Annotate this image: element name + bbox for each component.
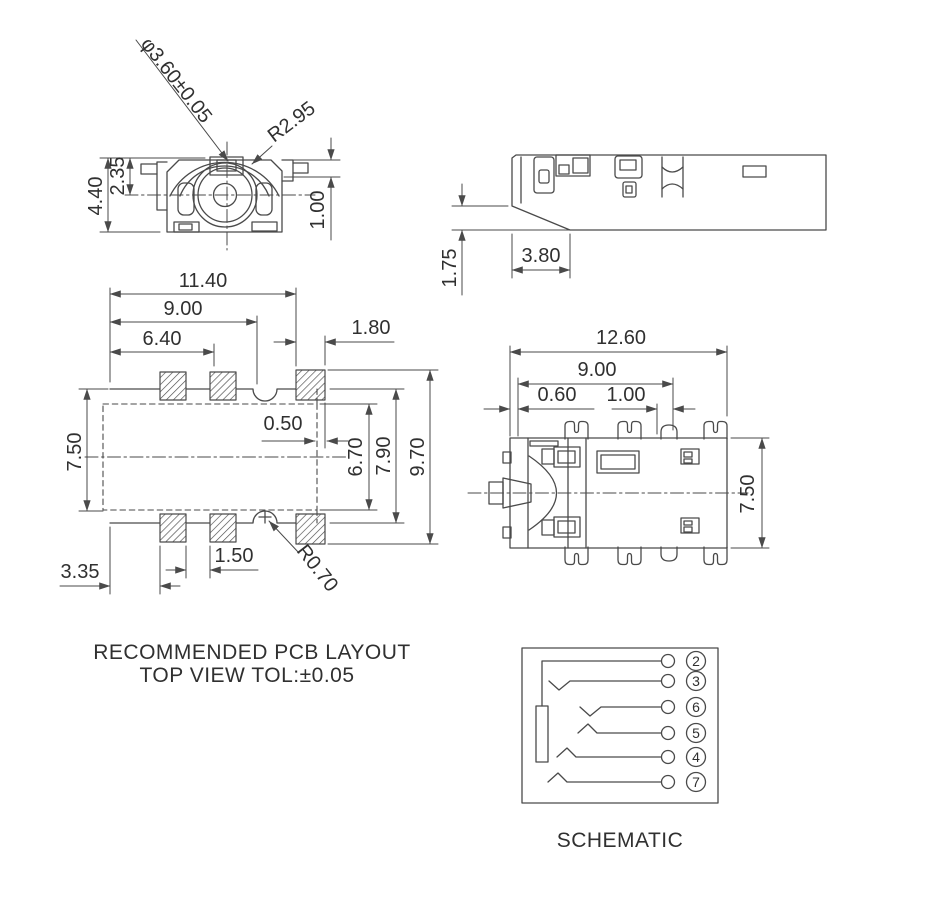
dim-front-step-height: 1.00: [307, 191, 329, 230]
schematic-terminal-pin6: [662, 701, 675, 714]
side-slot-arc-top: [662, 167, 683, 172]
bottom-leg-fork-top-3: [704, 422, 727, 440]
bottom-clip-tl-small: [542, 449, 554, 464]
front-right-tab: [282, 160, 293, 181]
bottom-center-window: [597, 451, 639, 473]
schematic-pin-number: 3: [692, 673, 700, 689]
bottom-clip-tr-inner1: [684, 452, 692, 457]
side-square-inner: [626, 186, 632, 193]
drawing-page: φ3.60±0.05 R2.95 4.40 2.35 1.00 1.75 3.8…: [0, 0, 950, 913]
side-block-inner: [573, 158, 588, 173]
schematic-terminal-pin5: [662, 727, 675, 740]
bottom-leg-fork-bot-3: [704, 547, 727, 565]
pcb-pad-top-3: [296, 370, 325, 400]
dim-front-center-height: 2.35: [107, 157, 129, 196]
front-right-pin: [293, 163, 308, 173]
bottom-clip-tl-inner: [558, 451, 575, 463]
front-left-tab: [157, 162, 167, 210]
bottom-leg-fork-bot-1: [565, 547, 588, 565]
dim-pcb-inner-width: 9.00: [164, 298, 203, 320]
dim-front-overall-height: 4.40: [85, 177, 107, 216]
schematic-pin-number: 4: [692, 749, 700, 765]
pcb-pad-top-1: [160, 372, 186, 400]
dim-bottom-pin-pitch: 1.00: [607, 384, 646, 406]
schematic-wire-pin3: [549, 681, 661, 690]
schematic-pin-number: 7: [692, 774, 700, 790]
dim-pcb-pad-offset: 3.35: [61, 561, 100, 583]
schematic-plug-bar: [536, 706, 548, 762]
side-view-dimensions: [452, 184, 570, 295]
dim-pcb-outline-height: 7.90: [373, 437, 395, 476]
schematic-terminal-pin2: [662, 655, 675, 668]
bottom-leg-fork-top-2: [618, 422, 641, 440]
schematic-wire-pin5: [578, 724, 661, 733]
front-view-dimensions: [100, 40, 340, 240]
side-clip2-inner: [620, 160, 636, 170]
bottom-clip-bl-small: [542, 520, 554, 535]
bottom-view-dimensions: [484, 346, 769, 548]
bottom-clip-br-inner1: [684, 521, 692, 525]
schematic-wire-pin6: [580, 707, 661, 716]
dim-pcb-pad-span: 6.40: [143, 328, 182, 350]
pcb-pad-bottom-2: [210, 514, 236, 542]
schematic-wire-pin7: [548, 773, 661, 782]
pcb-pad-bottom-1: [160, 514, 186, 542]
front-left-foot-inner: [179, 224, 192, 230]
dim-pcb-edge-gap: 0.50: [264, 413, 303, 435]
front-right-foot: [252, 222, 277, 231]
dim-pcb-pad-width: 1.80: [352, 317, 391, 339]
schematic-pin-number: 5: [692, 725, 700, 741]
schematic-terminal-pin3: [662, 675, 675, 688]
dim-front-diameter: φ3.60±0.05: [136, 34, 216, 128]
side-clip2: [615, 156, 642, 178]
dim-pcb-overall-height: 9.70: [407, 438, 429, 477]
dim-bottom-pin-span: 9.00: [578, 359, 617, 381]
bottom-leg-fork-top-1: [565, 422, 588, 440]
dim-side-foot-height: 1.75: [439, 249, 461, 288]
side-clip1: [534, 157, 554, 193]
side-clip1-inner: [539, 170, 549, 183]
pcb-pad-bottom-3: [296, 514, 325, 544]
front-left-pin: [141, 164, 157, 174]
bottom-strip: [530, 441, 558, 446]
side-right-notch: [743, 166, 766, 177]
dim-pcb-overall-width: 11.40: [179, 270, 228, 292]
dim-bottom-body-height: 7.50: [737, 475, 759, 514]
side-square: [623, 182, 636, 197]
schematic-terminal-pin7: [662, 776, 675, 789]
schematic: [522, 648, 718, 803]
schematic-pin-number: 6: [692, 699, 700, 715]
bottom-clip-br-inner2: [684, 527, 692, 532]
pcb-layout-view: [85, 370, 348, 544]
side-slot-arc-bottom: [662, 184, 683, 189]
bottom-leg-bump-top: [661, 425, 677, 439]
technical-drawing: φ3.60±0.05 R2.95 4.40 2.35 1.00 1.75 3.8…: [0, 0, 950, 913]
pcb-caption-line1: RECOMMENDED PCB LAYOUT: [93, 641, 410, 664]
bottom-view: [468, 422, 748, 565]
side-view: [512, 155, 826, 230]
dim-side-chamfer: 3.80: [522, 245, 561, 267]
pcb-caption-line2: TOP VIEW TOL:±0.05: [139, 664, 354, 687]
schematic-pin-number: 2: [692, 653, 700, 669]
side-block-detail: [559, 165, 569, 174]
dim-pcb-pad-gap: 1.50: [215, 545, 254, 567]
schematic-wire-pin4: [557, 748, 661, 757]
schematic-wire-pin2: [542, 661, 661, 706]
dim-bottom-overall-width: 12.60: [596, 327, 646, 349]
schematic-terminal-pin4: [662, 751, 675, 764]
dim-front-radius: R2.95: [264, 97, 320, 147]
bottom-leg-fork-bot-2: [618, 547, 641, 565]
front-left-slot: [178, 183, 194, 215]
schematic-caption: SCHEMATIC: [557, 829, 684, 852]
bottom-leg-bump-bot: [661, 547, 677, 561]
pcb-pad-top-2: [210, 372, 236, 400]
bottom-clip-tr-inner2: [684, 459, 692, 463]
bottom-center-window-inner: [601, 455, 635, 469]
dim-pcb-notch-radius: R0.70: [292, 541, 342, 597]
dim-pcb-body-height: 7.50: [64, 433, 86, 472]
dim-pcb-inner-height: 6.70: [345, 438, 367, 477]
dim-bottom-edge-offset: 0.60: [538, 384, 577, 406]
bottom-clip-bl-inner: [558, 521, 575, 533]
